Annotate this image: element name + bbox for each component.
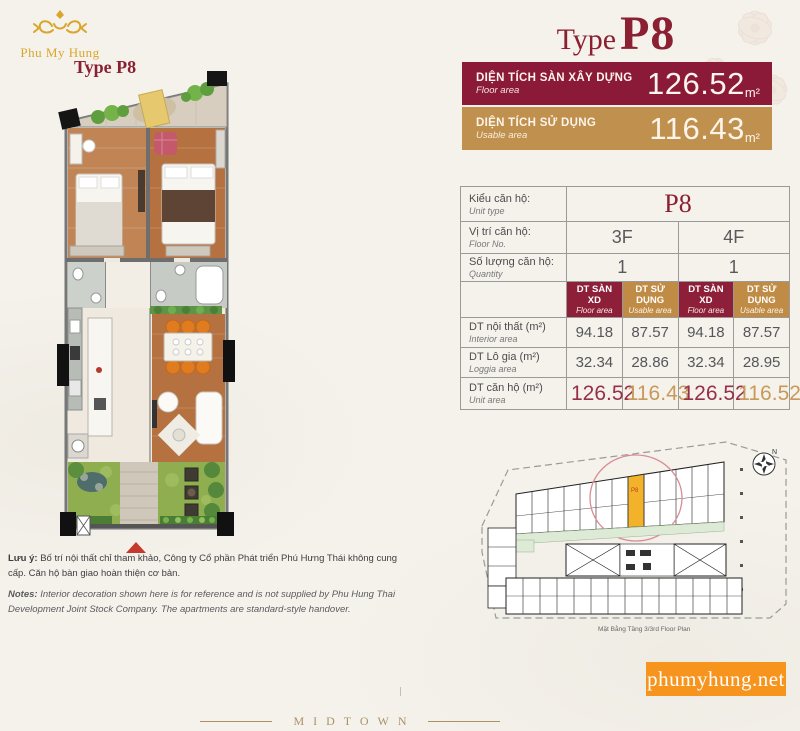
apartment-floor-plan: [46, 70, 246, 560]
svg-text:N: N: [772, 449, 777, 456]
floor-area-banner: DIỆN TÍCH SÀN XÂY DỰNG Floor area 126.52…: [462, 62, 772, 105]
empty-cell: [461, 282, 567, 318]
quantity-value: 1: [678, 254, 790, 282]
brochure-page: Phu My Hung Type P8: [0, 0, 800, 731]
unit-type-value: P8: [567, 187, 790, 222]
floor-no-value: 3F: [567, 222, 679, 254]
col-header-usable-area: DT SỬ DỤNGUsable area: [734, 282, 790, 318]
footer-brand-name: MIDTOWN: [284, 714, 415, 729]
unit-area-value: 116.52: [734, 378, 790, 410]
usable-area-banner: DIỆN TÍCH SỬ DỤNG Usable area 116.43m²: [462, 107, 772, 150]
note-english: Notes: Interior decoration shown here is…: [8, 588, 408, 617]
highlighted-unit-label: P8: [631, 488, 639, 494]
row-unit-area: DT căn hộ (m²)Unit area 126.52 116.43 12…: [461, 378, 790, 410]
footer-tick: [400, 687, 401, 696]
title-code: P8: [620, 7, 675, 60]
indoor-planter: [150, 306, 222, 314]
interior-area-value: 87.57: [734, 318, 790, 348]
usable-area-value: 116.43m²: [649, 111, 760, 147]
interior-area-label: DT nội thất (m²)Interior area: [461, 318, 567, 348]
interior-area-value: 87.57: [622, 318, 678, 348]
compass-icon: N: [753, 449, 777, 475]
floor-no-label: Vị trí căn hộ:Floor No.: [461, 222, 567, 254]
floor-no-value: 4F: [678, 222, 790, 254]
col-header-usable-area: DT SỬ DỤNGUsable area: [622, 282, 678, 318]
quantity-label: Số lượng căn hộ:Quantity: [461, 254, 567, 282]
loggia-area-value: 32.34: [567, 348, 623, 378]
site-plan-caption: Mặt Bằng Tầng 3/3rd Floor Plan: [598, 624, 691, 633]
usable-area-label-en: Usable area: [476, 130, 596, 141]
row-col-headers: DT SÀN XDFloor area DT SỬ DỤNGUsable are…: [461, 282, 790, 318]
col-header-floor-area: DT SÀN XDFloor area: [567, 282, 623, 318]
unit-spec-table: Kiểu căn hộ:Unit type P8 Vị trí căn hộ:F…: [460, 186, 790, 410]
unit-area-value: 126.52: [567, 378, 623, 410]
footer-rule-left: [200, 721, 272, 722]
elevator-core: [674, 544, 726, 576]
note-vietnamese: Lưu ý: Bố trí nội thất chỉ tham khảo, Cô…: [8, 552, 408, 581]
row-quantity: Số lượng căn hộ:Quantity 1 1: [461, 254, 790, 282]
title-prefix: Type: [557, 23, 617, 56]
phu-my-hung-emblem-icon: [28, 4, 92, 42]
loggia-area-value: 28.95: [734, 348, 790, 378]
row-loggia-area: DT Lô gia (m²)Loggia area 32.34 28.86 32…: [461, 348, 790, 378]
row-interior-area: DT nội thất (m²)Interior area 94.18 87.5…: [461, 318, 790, 348]
website-link[interactable]: phumyhung.net: [646, 662, 786, 696]
dining-set: [164, 320, 212, 374]
elevator-core: [566, 544, 620, 576]
interior-area-value: 94.18: [678, 318, 734, 348]
col-header-floor-area: DT SÀN XDFloor area: [678, 282, 734, 318]
building-site-plan: P8: [478, 432, 792, 644]
armchair: [154, 132, 177, 155]
shaft-box: [77, 516, 90, 535]
interior-area-value: 94.18: [567, 318, 623, 348]
page-title: Type P8: [460, 6, 772, 61]
loggia-area-value: 32.34: [678, 348, 734, 378]
loggia-area-label: DT Lô gia (m²)Loggia area: [461, 348, 567, 378]
footer-brand: MIDTOWN: [165, 714, 535, 729]
unit-type-label: Kiểu căn hộ:Unit type: [461, 187, 567, 222]
row-unit-type: Kiểu căn hộ:Unit type P8: [461, 187, 790, 222]
floor-area-value: 126.52m²: [647, 66, 760, 102]
unit-area-value: 126.52: [678, 378, 734, 410]
notes-block: Lưu ý: Bố trí nội thất chỉ tham khảo, Cô…: [8, 552, 408, 618]
quantity-value: 1: [567, 254, 679, 282]
footer-rule-right: [428, 721, 500, 722]
unit-area-value: 116.43: [622, 378, 678, 410]
floor-area-label-vi: DIỆN TÍCH SÀN XÂY DỰNG: [476, 72, 633, 84]
floor-area-label-en: Floor area: [476, 85, 633, 96]
row-floor-no: Vị trí căn hộ:Floor No. 3F 4F: [461, 222, 790, 254]
brand-logo: Phu My Hung: [10, 4, 110, 61]
usable-area-label-vi: DIỆN TÍCH SỬ DỤNG: [476, 117, 596, 129]
unit-area-label: DT căn hộ (m²)Unit area: [461, 378, 567, 410]
loggia-area-value: 28.86: [622, 348, 678, 378]
flower-bed: [160, 516, 218, 524]
